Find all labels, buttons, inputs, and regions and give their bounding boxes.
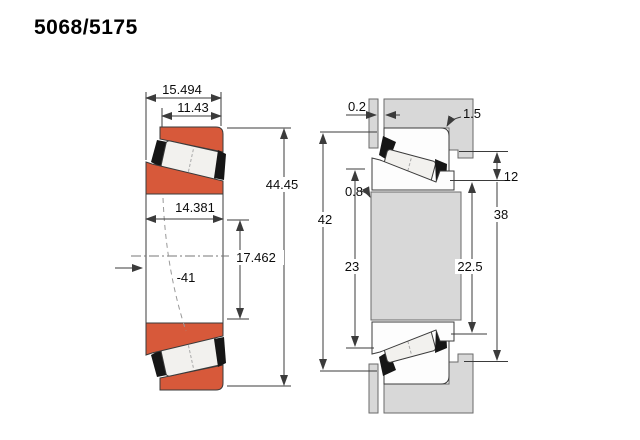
dim-label: 22.5 (457, 259, 482, 274)
right-view-mounting-section: 0.2 1.5 0.8 42 23 12 (314, 99, 518, 413)
dim-label: 15.494 (162, 82, 202, 97)
dim-label: -41 (177, 270, 196, 285)
bearing-lower-half (146, 323, 226, 390)
bearing-upper-half (146, 127, 226, 194)
dim-label: 12 (504, 169, 518, 184)
shaft-bar (371, 192, 461, 320)
dim-cone-front-width: 11.43 (162, 100, 221, 127)
dim-shaft-fillet-radius: 0.8 (345, 184, 370, 199)
dim-label: 1.5 (463, 106, 481, 121)
dim-housing-shoulder: 42 (314, 132, 377, 371)
mounting-upper-half (369, 99, 473, 190)
contact-angle-dash-line (163, 198, 186, 331)
left-view-bearing-section: 15.494 11.43 44.45 14.381 17.462 -41 (115, 82, 303, 390)
dim-label: 11.43 (177, 100, 209, 115)
dim-offset-note: -41 (115, 268, 195, 285)
dim-label: 44.45 (266, 177, 299, 192)
dim-label: 14.381 (175, 200, 215, 215)
dim-race-depth: 17.462 (227, 220, 284, 319)
dim-label: 23 (345, 259, 359, 274)
dim-label: 0.8 (345, 184, 363, 199)
mounting-lower-half (369, 322, 473, 413)
technical-drawing-canvas: 15.494 11.43 44.45 14.381 17.462 -41 (0, 0, 640, 440)
dim-label: 38 (494, 207, 508, 222)
dim-cup-inner-width: 14.381 (146, 200, 223, 219)
dim-label: 17.462 (236, 250, 276, 265)
dim-label: 42 (318, 212, 332, 227)
dim-label: 0.2 (348, 99, 366, 114)
